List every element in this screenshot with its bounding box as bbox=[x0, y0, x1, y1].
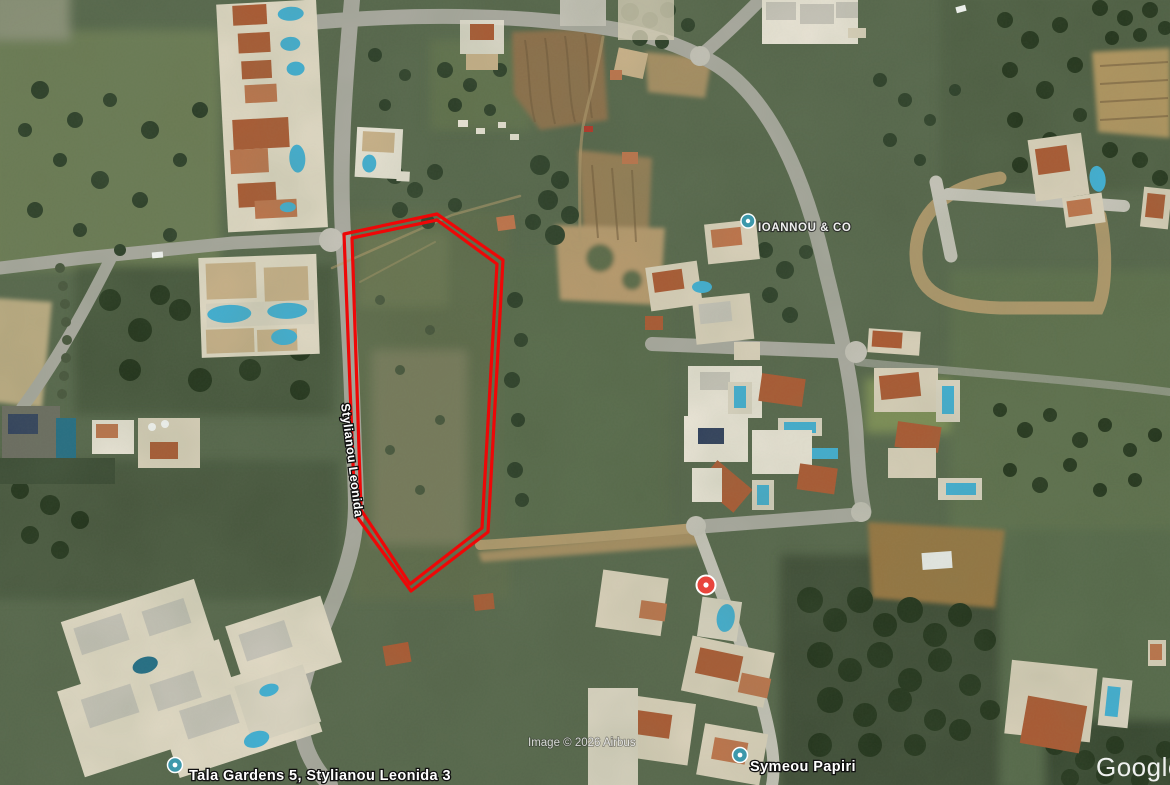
place-label-tala-gardens[interactable]: Tala Gardens 5, Stylianou Leonida 3 bbox=[189, 768, 451, 784]
google-logo: Google bbox=[1096, 752, 1170, 782]
pin-center-dot bbox=[738, 753, 743, 758]
place-label-symeou-papiri[interactable]: Symeou Papiri bbox=[750, 759, 856, 775]
place-pin-symeou-papiri[interactable] bbox=[733, 748, 748, 763]
place-pin-ioannou[interactable] bbox=[741, 214, 755, 228]
pin-center-dot bbox=[746, 219, 750, 223]
saved-place-pin-red[interactable] bbox=[697, 576, 716, 595]
pin-center-dot bbox=[173, 763, 178, 768]
satellite-map[interactable]: Stylianou Leonida IOANNOU & CO Tala Gard… bbox=[0, 0, 1170, 785]
place-label-ioannou[interactable]: IOANNOU & CO bbox=[758, 222, 851, 234]
grain-overlay bbox=[0, 0, 1170, 785]
place-pin-tala-gardens[interactable] bbox=[168, 758, 183, 773]
pin-center-dot bbox=[703, 582, 708, 587]
imagery-copyright: Image © 2026 Airbus bbox=[528, 737, 636, 749]
aerial-imagery: Stylianou Leonida IOANNOU & CO Tala Gard… bbox=[0, 0, 1170, 785]
